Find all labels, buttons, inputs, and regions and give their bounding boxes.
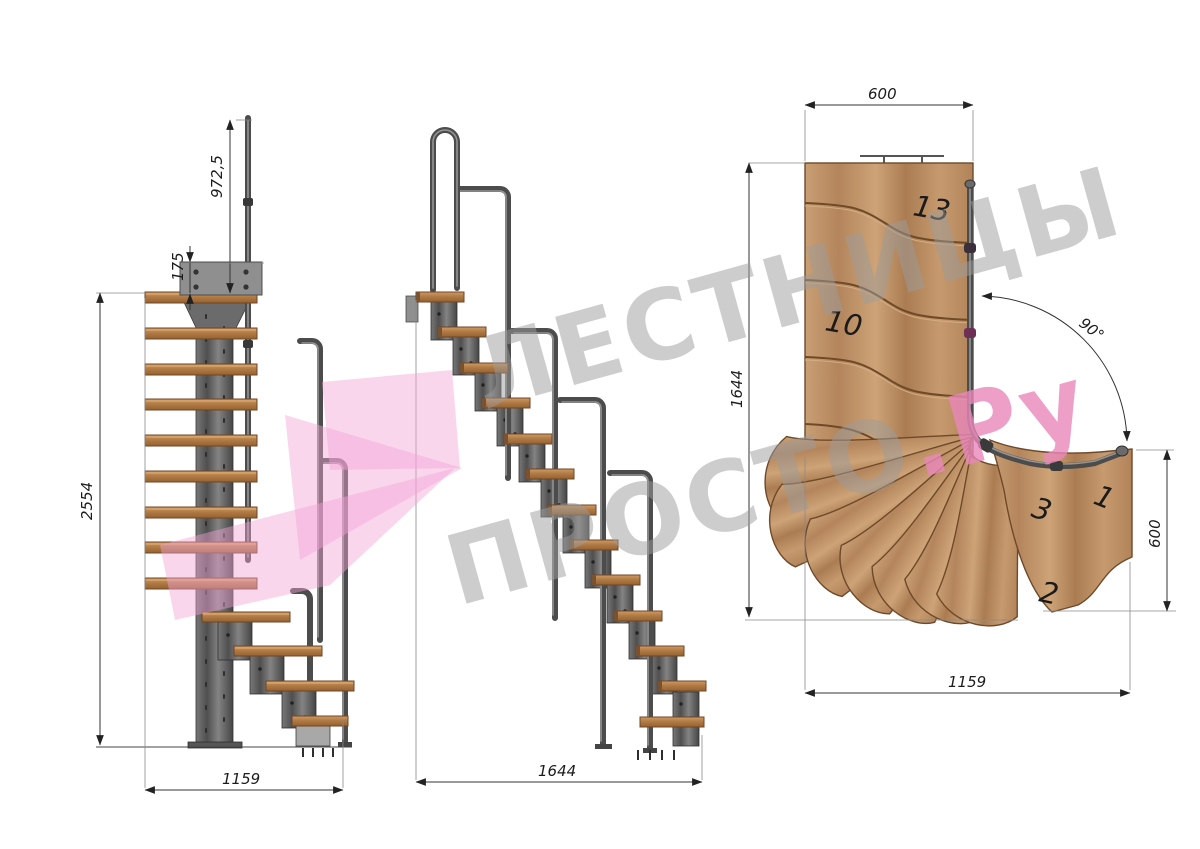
dim-plate-height: 175 — [169, 252, 187, 281]
dim-plan-width: 600 — [868, 85, 897, 103]
dim-plan-length: 1159 — [948, 673, 986, 691]
staircase-drawing: 13 10 3 1 2 2554 972,5 175 1159 1644 600 — [0, 0, 1200, 849]
dim-side-run: 1159 — [222, 770, 260, 788]
dim-total-height: 2554 — [78, 482, 96, 520]
dim-entry-depth: 600 — [1146, 519, 1164, 548]
dim-handrail-height: 972,5 — [208, 155, 226, 198]
step — [416, 292, 464, 302]
handrail-loop — [433, 130, 457, 290]
mounting-plate — [180, 262, 262, 295]
dim-front-run: 1644 — [538, 762, 576, 780]
blueprint-canvas: 13 10 3 1 2 2554 972,5 175 1159 1644 600 — [0, 0, 1200, 849]
dim-turn-angle: 90° — [1076, 314, 1108, 345]
dim-plan-depth: 1644 — [728, 370, 746, 408]
